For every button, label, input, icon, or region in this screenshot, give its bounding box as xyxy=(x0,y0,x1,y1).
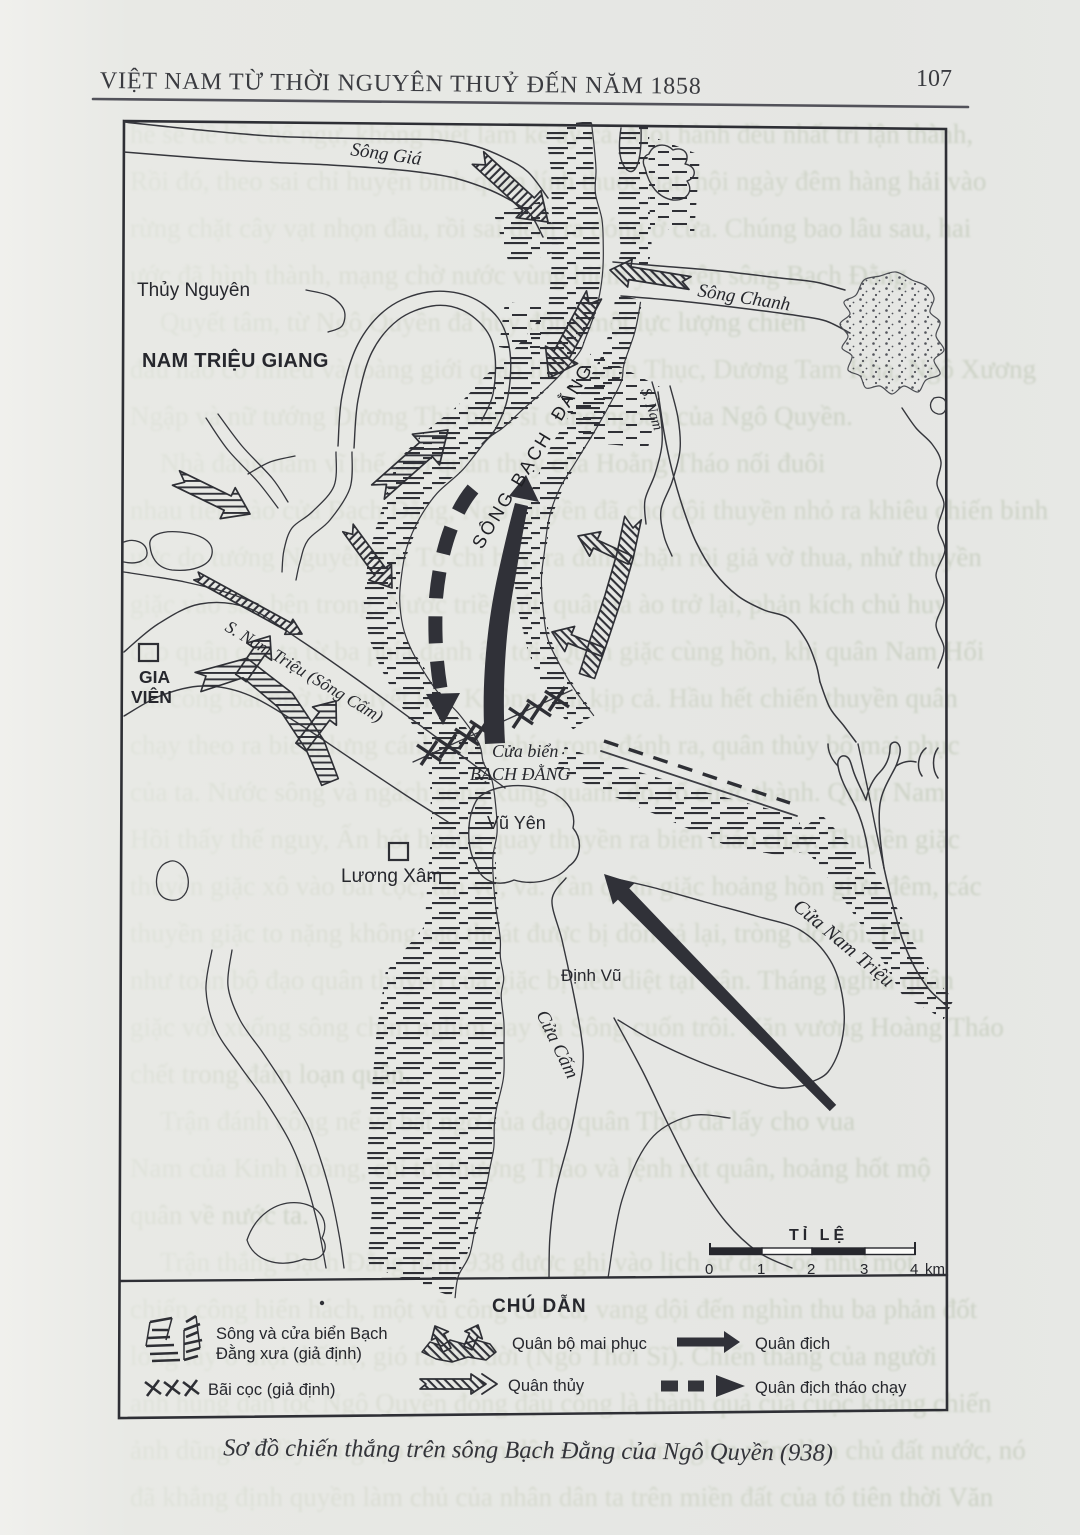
svg-text:Lương Xâm: Lương Xâm xyxy=(341,866,442,887)
svg-text:đã khẳng định quyền làm chủ củ: đã khẳng định quyền làm chủ của nhân dân… xyxy=(130,1482,994,1512)
svg-text:Quân thủy: Quân thủy xyxy=(508,1377,585,1395)
svg-text:VIÊN: VIÊN xyxy=(131,686,172,707)
svg-text:Trận đánh công nể và bất ngờ c: Trận đánh công nể và bất ngờ của đạo quâ… xyxy=(160,1106,855,1136)
svg-text:như toàn bộ đạo quân thuyền củ: như toàn bộ đạo quân thuyền của giặc bị … xyxy=(130,965,954,995)
svg-text:Sông và cửa biển Bạch: Sông và cửa biển Bạch xyxy=(216,1325,388,1343)
svg-text:Cửa biển: Cửa biển xyxy=(492,741,558,761)
svg-text:107: 107 xyxy=(916,66,952,92)
svg-text:ước do tướng Nguyễn Tất Tố chỉ: ước do tướng Nguyễn Tất Tố chỉ huy, ra đ… xyxy=(130,542,982,572)
svg-text:GIA: GIA xyxy=(139,667,170,687)
svg-text:nhau tiến vào cửa Bạch Đằng, N: nhau tiến vào cửa Bạch Đằng, Ngô Quyền đ… xyxy=(130,495,1049,525)
svg-text:giặc vớt xuống sông chìm nghỉm: giặc vớt xuống sông chìm nghỉm nay và Sô… xyxy=(130,1012,1004,1042)
svg-text:BẠCH ĐẰNG: BẠCH ĐẰNG xyxy=(470,763,571,784)
svg-text:CHÚ DẪN: CHÚ DẪN xyxy=(492,1295,587,1317)
svg-text:Định Vũ: Định Vũ xyxy=(561,966,621,985)
svg-text:TỈ LỆ: TỈ LỆ xyxy=(789,1225,848,1244)
svg-text:Vũ Yên: Vũ Yên xyxy=(487,813,546,833)
svg-text:Bãi cọc (giả định): Bãi cọc (giả định) xyxy=(208,1381,335,1399)
svg-text:Quân địch: Quân địch xyxy=(755,1335,830,1353)
svg-text:NAM TRIỆU GIANG: NAM TRIỆU GIANG xyxy=(142,348,329,372)
svg-text:Quyết tâm, từ Ngô Quyền đã huy: Quyết tâm, từ Ngô Quyền đã huy động một … xyxy=(160,307,807,337)
svg-text:Đằng xưa (giả định): Đằng xưa (giả định) xyxy=(216,1344,362,1363)
svg-text:Sơ đồ chiến thắng trên sông Bạ: Sơ đồ chiến thắng trên sông Bạch Đằng củ… xyxy=(223,1434,833,1466)
svg-text:Nhà đang nắm vĩ thế đạo quân t: Nhà đang nắm vĩ thế đạo quân thủy của Ho… xyxy=(160,448,825,478)
svg-text:Quân bộ mai phục: Quân bộ mai phục xyxy=(512,1335,647,1353)
svg-text:Nam của Kinh hoàng, chỉ tốt th: Nam của Kinh hoàng, chỉ tốt thượng Thào … xyxy=(130,1153,931,1183)
svg-text:Thủy Nguyên: Thủy Nguyên xyxy=(137,280,250,301)
svg-text:0: 0 xyxy=(705,1261,713,1278)
svg-text:Quân địch tháo chạy: Quân địch tháo chạy xyxy=(755,1379,907,1397)
